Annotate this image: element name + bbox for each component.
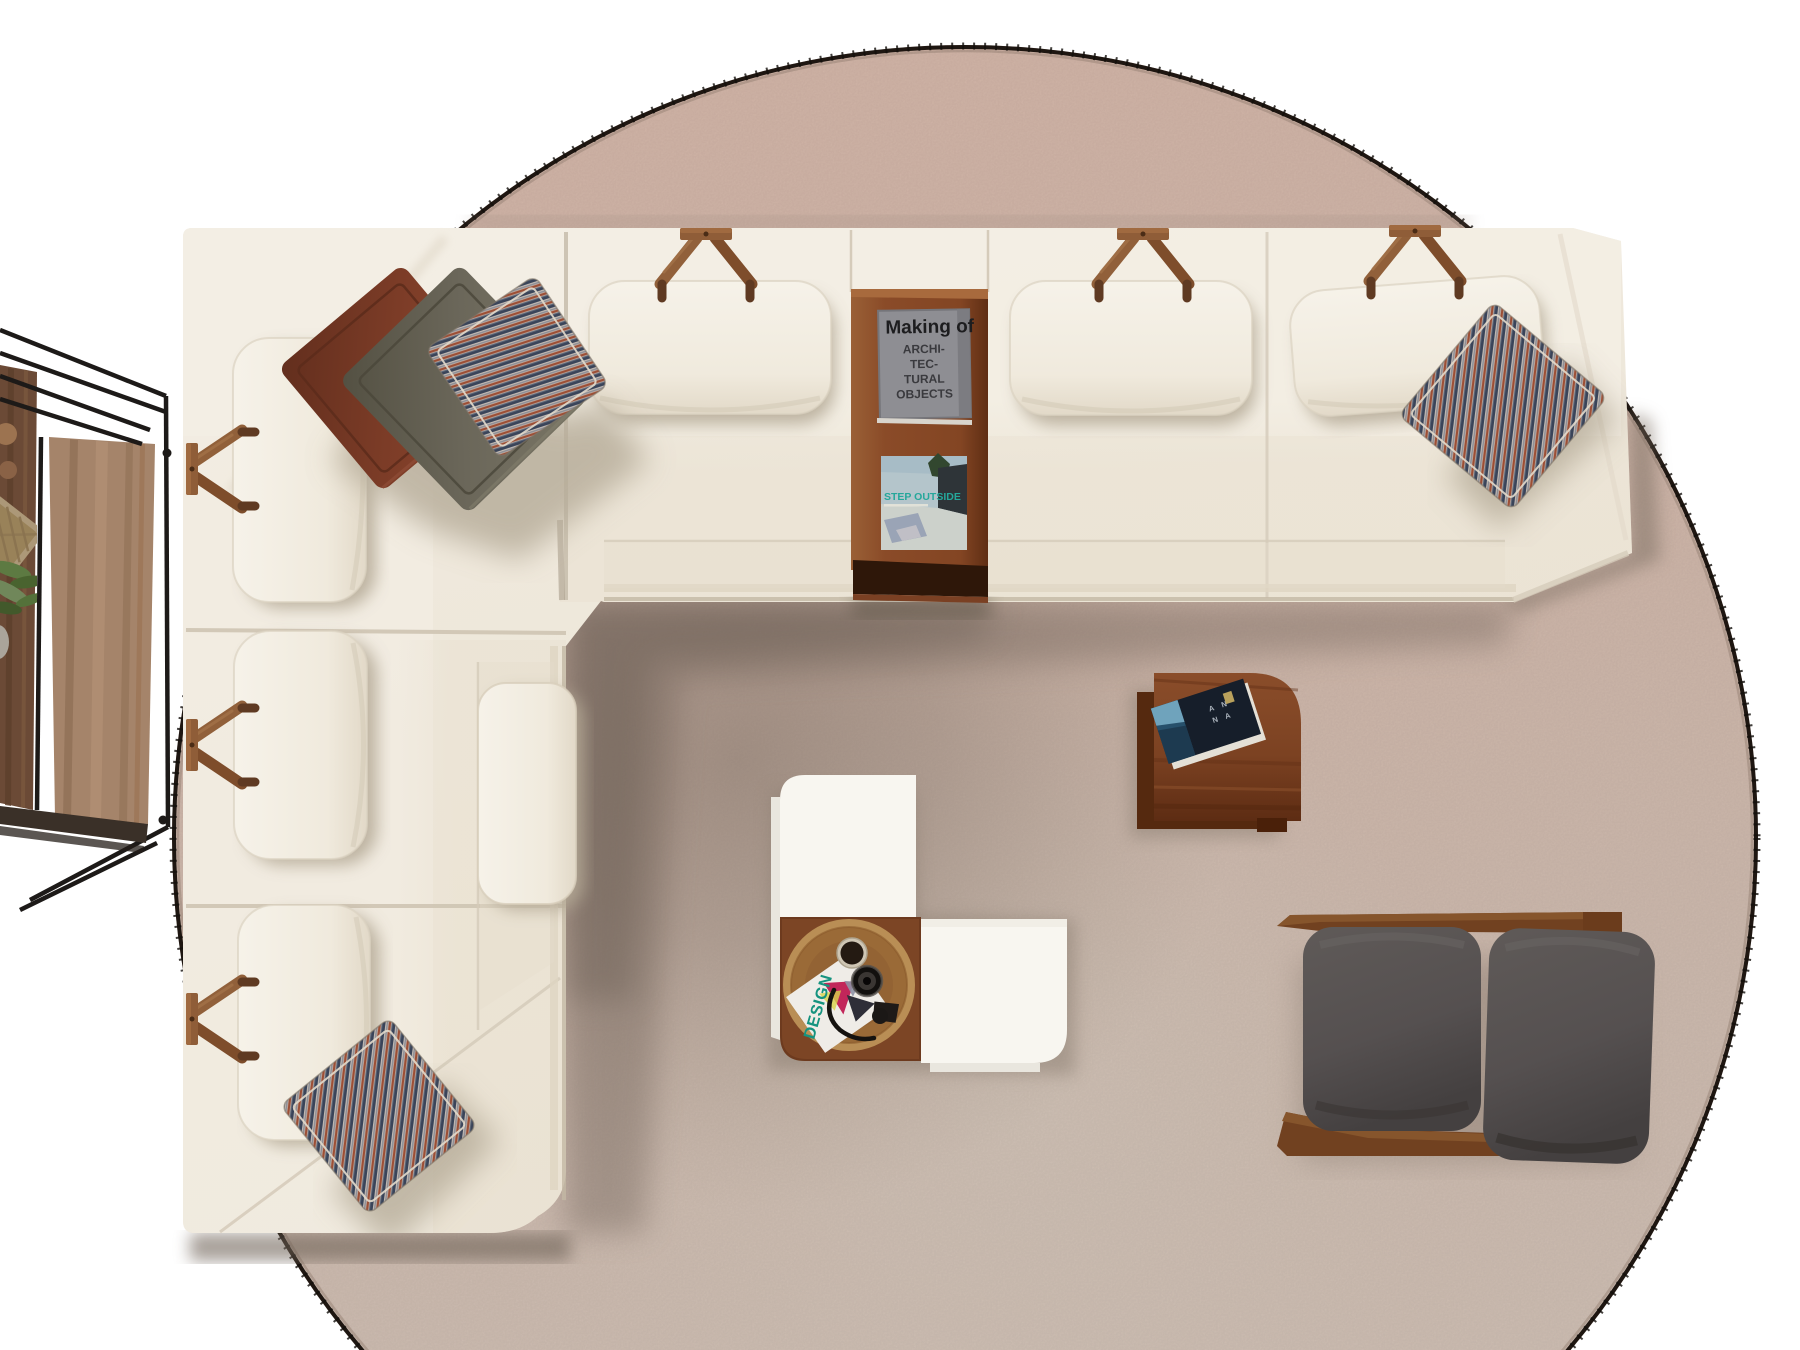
svg-text:Making of: Making of <box>885 316 975 339</box>
svg-text:STEP OUTSIDE: STEP OUTSIDE <box>884 491 961 503</box>
svg-text:ARCHI-: ARCHI- <box>903 342 945 357</box>
svg-text:OBJECTS: OBJECTS <box>896 387 953 402</box>
svg-text:TURAL: TURAL <box>904 372 945 387</box>
svg-text:TEC-: TEC- <box>910 357 938 371</box>
